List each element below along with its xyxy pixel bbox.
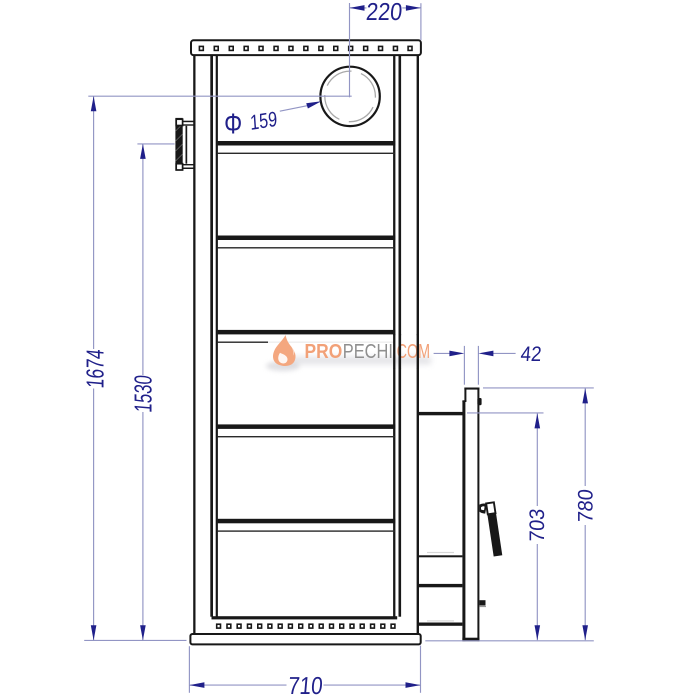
svg-text:710: 710 (287, 671, 324, 699)
svg-text:1530: 1530 (131, 374, 158, 414)
svg-text:1674: 1674 (82, 348, 110, 389)
svg-text:159: 159 (249, 107, 278, 135)
svg-text:42: 42 (520, 343, 543, 366)
svg-text:PECHI: PECHI (343, 339, 393, 362)
svg-text:.COM: .COM (393, 340, 430, 363)
svg-text:220: 220 (365, 0, 404, 25)
svg-text:Φ: Φ (224, 107, 242, 140)
svg-text:PRO: PRO (305, 341, 343, 364)
svg-text:780: 780 (574, 488, 598, 523)
svg-text:703: 703 (525, 508, 549, 543)
